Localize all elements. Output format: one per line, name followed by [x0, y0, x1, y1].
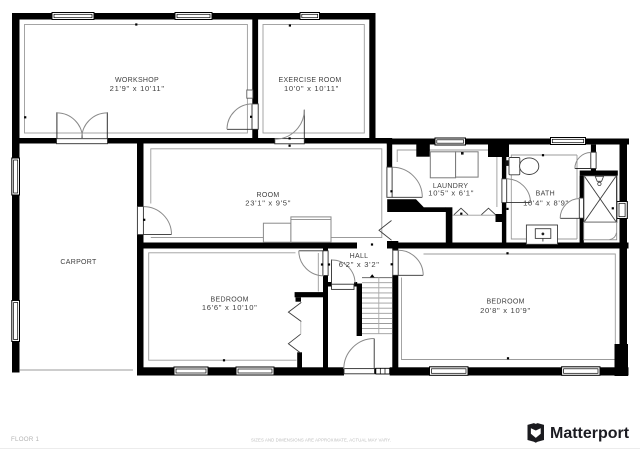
svg-text:CARPORT: CARPORT [60, 259, 97, 266]
svg-text:HALL: HALL [350, 253, 369, 260]
svg-text:Matterport: Matterport [550, 425, 630, 442]
svg-text:6'2" x 3'2": 6'2" x 3'2" [339, 260, 380, 269]
svg-text:20'8" x 10'9": 20'8" x 10'9" [480, 306, 531, 315]
svg-text:16'6" x 10'10": 16'6" x 10'10" [202, 303, 258, 312]
svg-text:FLOOR 1: FLOOR 1 [11, 436, 40, 443]
svg-text:BATH: BATH [536, 191, 555, 198]
svg-text:10'4" x 8'9": 10'4" x 8'9" [523, 198, 569, 207]
svg-text:SIZES AND DIMENSIONS ARE APPRO: SIZES AND DIMENSIONS ARE APPROXIMATE, AC… [251, 438, 391, 443]
svg-text:10'0" x 10'11": 10'0" x 10'11" [284, 84, 339, 93]
svg-text:23'1" x 9'5": 23'1" x 9'5" [245, 198, 291, 207]
svg-text:BEDROOM: BEDROOM [486, 299, 524, 306]
svg-text:EXERCISE ROOM: EXERCISE ROOM [278, 77, 341, 84]
svg-text:21'9" x 10'11": 21'9" x 10'11" [110, 84, 165, 93]
svg-text:10'5" x 6'1": 10'5" x 6'1" [428, 189, 474, 198]
svg-text:WORKSHOP: WORKSHOP [115, 77, 159, 84]
